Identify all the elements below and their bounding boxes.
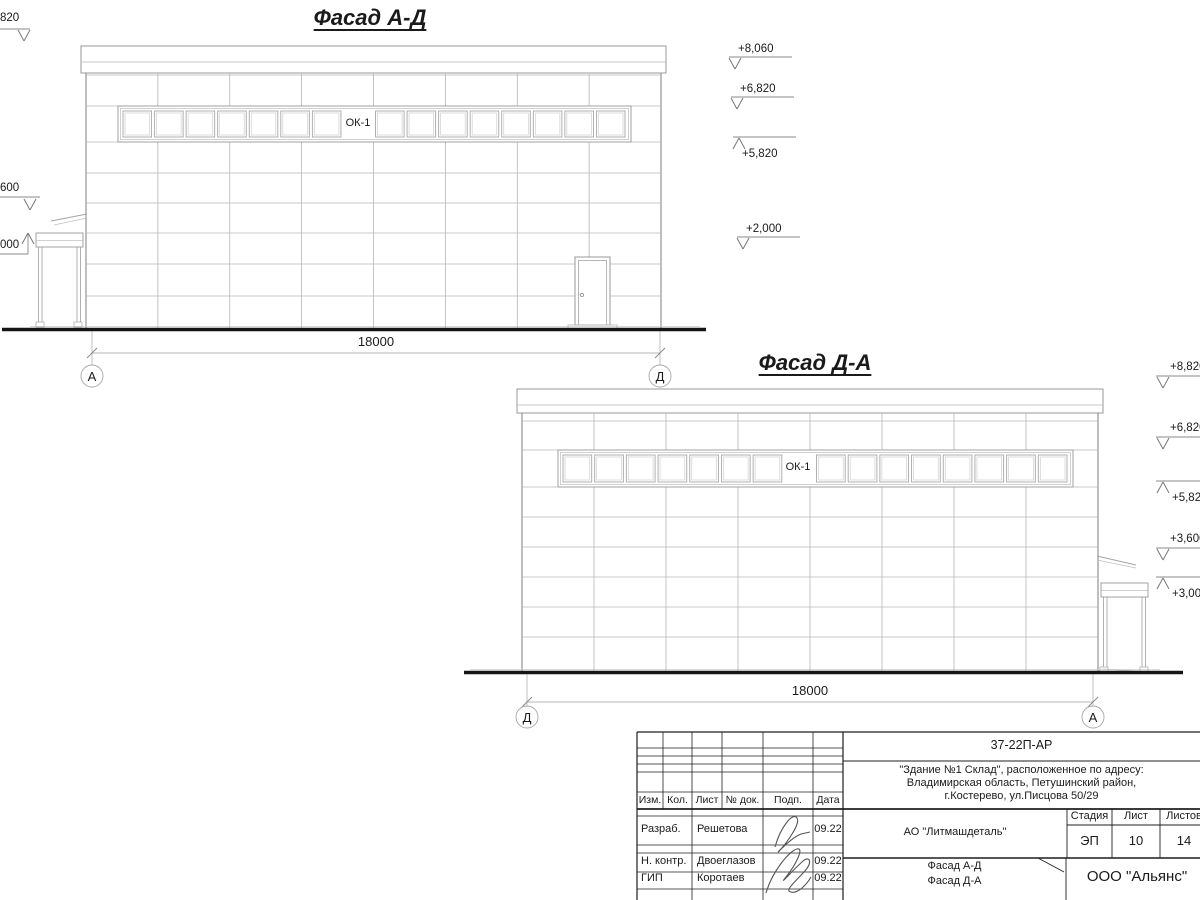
title-block-sheets-value: 14 — [1160, 833, 1200, 848]
elevation-mark-label: +6,820 — [1170, 422, 1200, 434]
elevation-mark-label: +6,820 — [740, 83, 776, 95]
title-block-stage-label: Стадия — [1067, 810, 1112, 822]
title-block-col-data: Дата — [813, 794, 843, 806]
elevation-mark-label: +3,000 — [1172, 588, 1200, 600]
elevation-mark-label: +5,820 — [1172, 492, 1200, 504]
elevation-mark-label: +8,060 — [738, 43, 774, 55]
elevation-mark-label: +2,000 — [746, 223, 782, 235]
facade-ad-dimension: 18000 — [346, 334, 406, 349]
title-block-org: ООО "Альянс" — [1066, 868, 1200, 885]
title-block-row2-name: Двоеглазов — [697, 855, 755, 867]
elevation-mark-label: 000 — [0, 239, 26, 251]
title-block-row3-name: Коротаев — [697, 872, 745, 884]
title-block-address-line-1: "Здание №1 Склад", расположенное по адре… — [843, 764, 1200, 776]
facade-da-title: Фасад Д-А — [745, 350, 885, 376]
title-block-sheet-value: 10 — [1112, 833, 1160, 848]
facade-ad-title: Фасад А-Д — [300, 5, 440, 31]
title-block-col-kol: Кол. — [663, 794, 692, 806]
title-block-row3-role: ГИП — [641, 872, 663, 884]
facade-da-window-label: ОК-1 — [780, 461, 816, 473]
elevation-mark-label: +5,820 — [742, 148, 778, 160]
title-block-sheets-label: Листов — [1160, 810, 1200, 822]
facade-ad-window-label: ОК-1 — [340, 117, 376, 129]
title-block-address-line-2: Владимирская область, Петушинский район, — [843, 777, 1200, 789]
facade-ad-axis-left: А — [84, 369, 100, 384]
title-block-sheet-label: Лист — [1112, 810, 1160, 822]
elevation-mark-label: +3,600 — [1170, 533, 1200, 545]
title-block-row1-name: Решетова — [697, 823, 747, 835]
title-block-row1-role: Разраб. — [641, 823, 681, 835]
title-block-row1-date: 09.22 — [813, 823, 843, 835]
title-block-doc-title-line-1: Фасад А-Д — [843, 860, 1066, 872]
elevation-mark-label: 820 — [0, 12, 26, 24]
title-block-address-line-3: г.Костерево, ул.Писцова 50/29 — [843, 790, 1200, 802]
drawing-sheet: Фасад А-Д ОК-1 18000 А Д Фасад Д-А ОК-1 … — [0, 0, 1200, 900]
elevation-mark-label: 600 — [0, 182, 26, 194]
facade-da-dimension: 18000 — [780, 683, 840, 698]
title-block-row2-role: Н. контр. — [641, 855, 686, 867]
title-block-col-podp: Подп. — [763, 794, 813, 806]
facade-da-axis-left: Д — [519, 710, 535, 725]
title-block-doc-number: 37-22П-АР — [843, 738, 1200, 752]
title-block-company: АО "Литмашдеталь" — [843, 826, 1067, 838]
title-block-row3-date: 09.22 — [813, 872, 843, 884]
elevation-mark-label: +8,820 — [1170, 361, 1200, 373]
title-block-col-izm: Изм. — [637, 794, 663, 806]
title-block-row2-date: 09.22 — [813, 855, 843, 867]
facade-ad-axis-right: Д — [652, 369, 668, 384]
title-block-col-ndok: № док. — [722, 794, 763, 806]
title-block-doc-title-line-2: Фасад Д-А — [843, 875, 1066, 887]
facade-da-axis-right: А — [1085, 710, 1101, 725]
title-block-stage-value: ЭП — [1067, 833, 1112, 848]
title-block-col-list: Лист — [692, 794, 722, 806]
